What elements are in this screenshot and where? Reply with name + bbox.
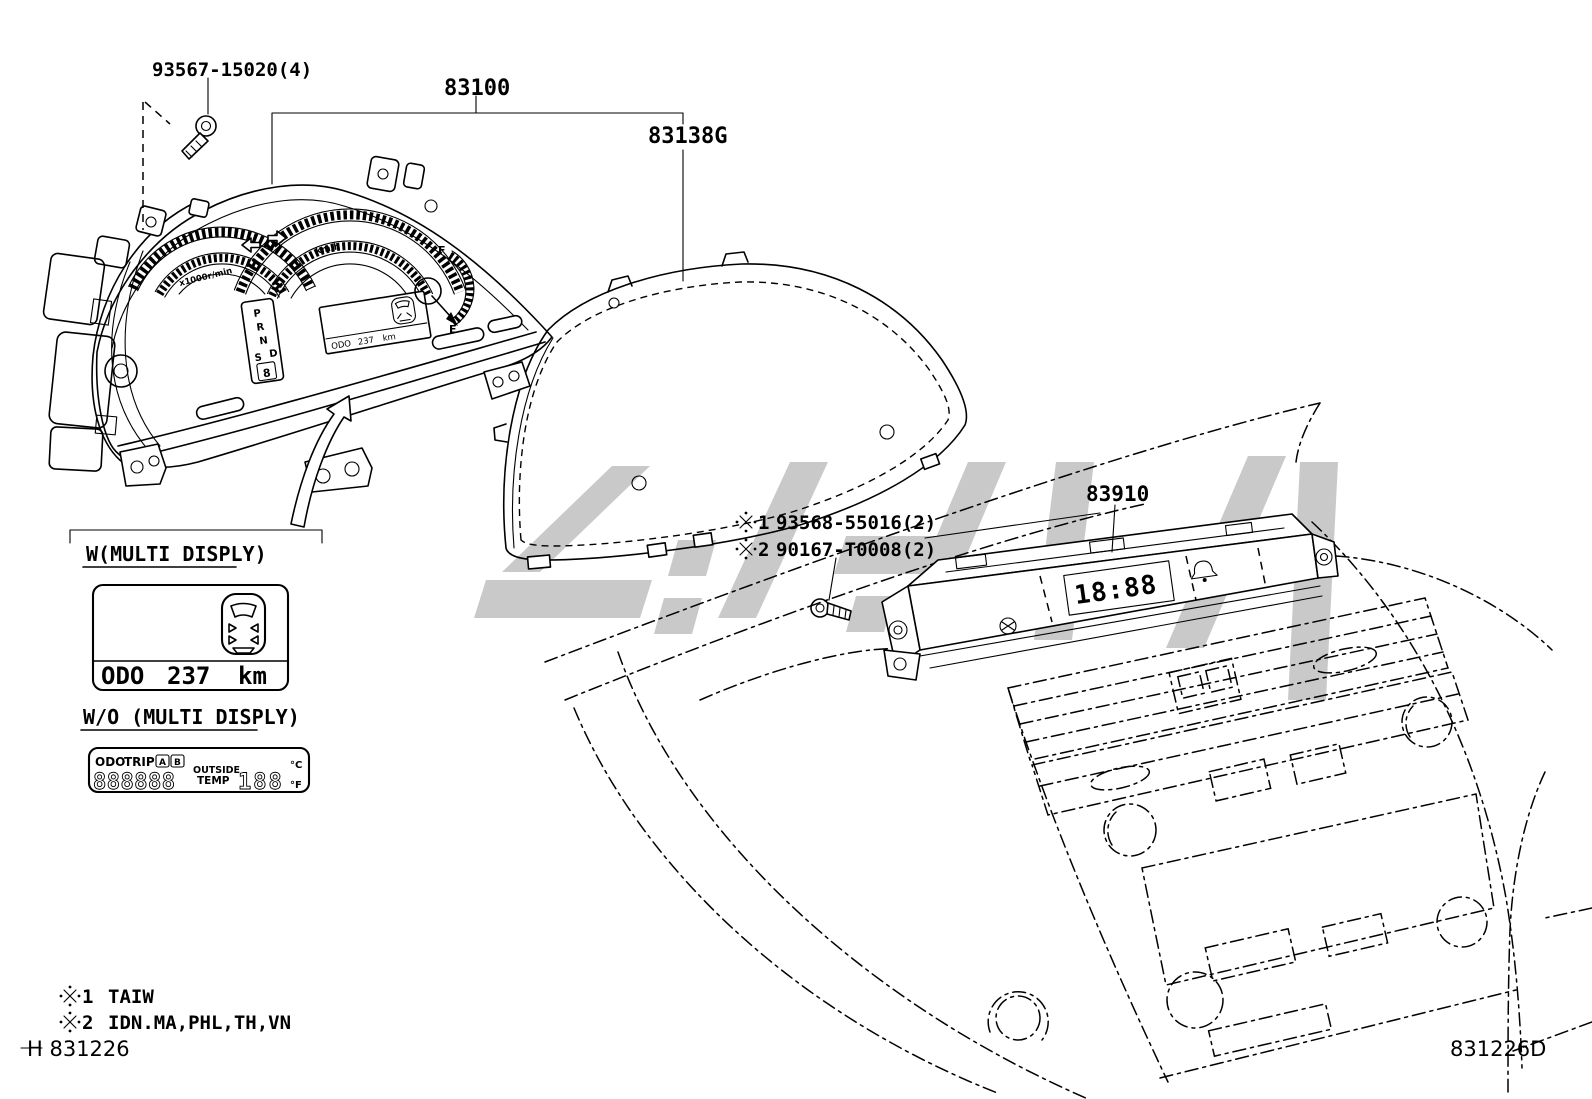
lcd-trip-label: TRIP bbox=[124, 755, 155, 769]
parts-diagram-page: x1000r/min km/h P R N S D 8 bbox=[0, 0, 1592, 1099]
app-note2-num: 2 bbox=[82, 1012, 93, 1034]
without-multi-display-section: W/O (MULTI DISPLY) ODO TRIP A B 888888 O… bbox=[81, 705, 309, 795]
applicability-note1: 1 TAIW bbox=[60, 986, 155, 1008]
app-note1-regions: TAIW bbox=[108, 986, 154, 1008]
cluster-center-display: ODO 237 km bbox=[319, 291, 431, 354]
applicability-note2: 2 IDN.MA,PHL,TH,VN bbox=[60, 1012, 291, 1034]
ref-part-note1: 1 93568-55016(2) bbox=[736, 512, 937, 534]
with-multi-display-section: W(MULTI DISPLY) ODO 237 km bbox=[70, 530, 322, 690]
reference-mark-icon bbox=[736, 512, 757, 533]
app-note2-regions: IDN.MA,PHL,TH,VN bbox=[108, 1012, 291, 1034]
ref-note1-part: 93568-55016(2) bbox=[776, 512, 936, 534]
odo-label: ODO bbox=[101, 662, 144, 690]
speedometer-dial: km/h bbox=[234, 209, 465, 298]
instrument-cluster-drawing: x1000r/min km/h P R N S D 8 bbox=[43, 156, 552, 527]
cluster-odo-unit: km bbox=[382, 332, 397, 344]
gear-indicator: P R N S D 8 bbox=[241, 298, 284, 384]
lcd-odo-digits: 888888 bbox=[93, 770, 175, 795]
lcd-fahrenheit: °F bbox=[290, 780, 302, 791]
reference-mark-icon bbox=[60, 1012, 81, 1033]
footer-figure-code: H 831226 bbox=[27, 1037, 130, 1061]
ref-note1-num: 1 bbox=[758, 512, 769, 534]
gear-s: S bbox=[254, 352, 263, 364]
part-label-cluster: 83100 bbox=[444, 76, 510, 101]
diagram-canvas: x1000r/min km/h P R N S D 8 bbox=[0, 0, 1592, 1099]
part-label-screw: 93567-15020(4) bbox=[152, 59, 312, 81]
odo-unit: km bbox=[238, 662, 267, 690]
odo-value: 237 bbox=[167, 662, 210, 690]
tacho-scale-label: x1000r/min bbox=[178, 266, 233, 289]
part-label-clock: 83910 bbox=[1086, 482, 1149, 506]
lcd-celsius: °C bbox=[290, 760, 302, 771]
fuel-full-label: F bbox=[438, 244, 446, 257]
gear-d: D bbox=[269, 348, 279, 360]
ref-note2-num: 2 bbox=[758, 539, 769, 561]
gear-n: N bbox=[259, 335, 269, 347]
ref-part-note2: 2 90167-T0008(2) bbox=[736, 539, 937, 561]
lcd-temp-label: TEMP bbox=[197, 775, 230, 787]
lcd-temp-digits: 188 bbox=[238, 770, 284, 795]
lcd-trip-a: A bbox=[159, 758, 166, 768]
screw-icon-top bbox=[182, 116, 216, 159]
lcd-odo-label: ODO bbox=[95, 755, 125, 769]
part-label-glass: 83138G bbox=[648, 124, 727, 149]
app-note1-num: 1 bbox=[82, 986, 93, 1008]
with-multi-display-title: W(MULTI DISPLY) bbox=[86, 542, 267, 566]
screw-icon-clock bbox=[811, 599, 851, 620]
ref-note2-part: 90167-T0008(2) bbox=[776, 539, 936, 561]
lcd-trip-b: B bbox=[174, 758, 181, 768]
footer-page-code: 831226D bbox=[1450, 1037, 1546, 1061]
reference-mark-icon bbox=[60, 986, 81, 1007]
without-multi-display-title: W/O (MULTI DISPLY) bbox=[83, 705, 300, 729]
gear-p: P bbox=[253, 308, 262, 320]
